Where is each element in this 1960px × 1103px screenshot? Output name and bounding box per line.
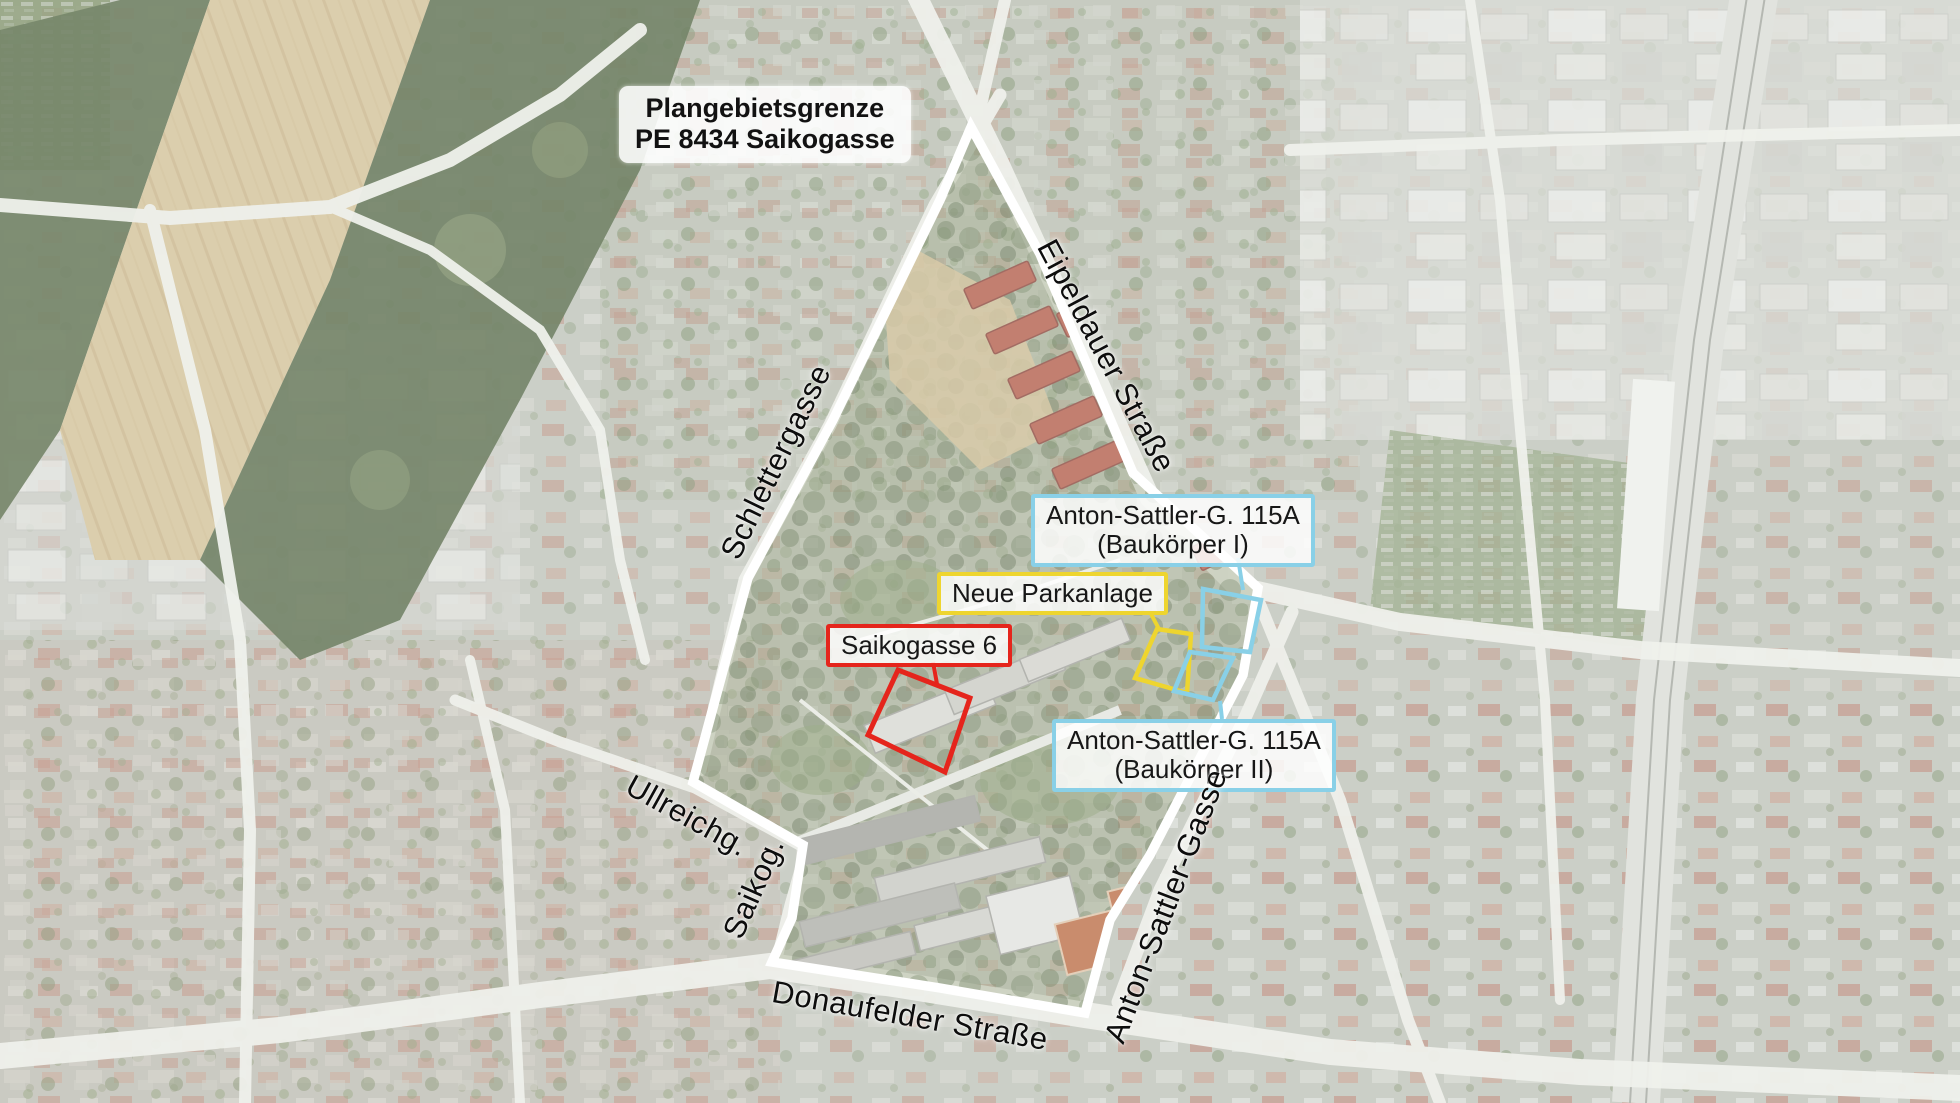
plan-area-title-box: Plangebietsgrenze PE 8434 Saikogasse (619, 86, 911, 163)
callout-baukoerper-1-line1: Anton-Sattler-G. 115A (1046, 501, 1300, 530)
callout-neue-parkanlage: Neue Parkanlage (937, 572, 1168, 615)
plan-title-line1: Plangebietsgrenze (635, 93, 895, 124)
callout-baukoerper-1: Anton-Sattler-G. 115A (Baukörper I) (1031, 494, 1315, 567)
callout-saikogasse-6: Saikogasse 6 (826, 624, 1012, 667)
aerial-map: Plangebietsgrenze PE 8434 Saikogasse Ant… (0, 0, 1960, 1103)
callout-neue-parkanlage-label: Neue Parkanlage (952, 579, 1153, 608)
callout-baukoerper-2-line1: Anton-Sattler-G. 115A (1067, 726, 1321, 755)
map-canvas (0, 0, 1960, 1103)
callout-saikogasse-6-label: Saikogasse 6 (841, 631, 997, 660)
plan-title-line2: PE 8434 Saikogasse (635, 124, 895, 155)
baukoerper2-leader-line (1220, 701, 1222, 719)
callout-baukoerper-1-line2: (Baukörper I) (1046, 530, 1300, 559)
haze-overlay (0, 0, 1960, 1103)
